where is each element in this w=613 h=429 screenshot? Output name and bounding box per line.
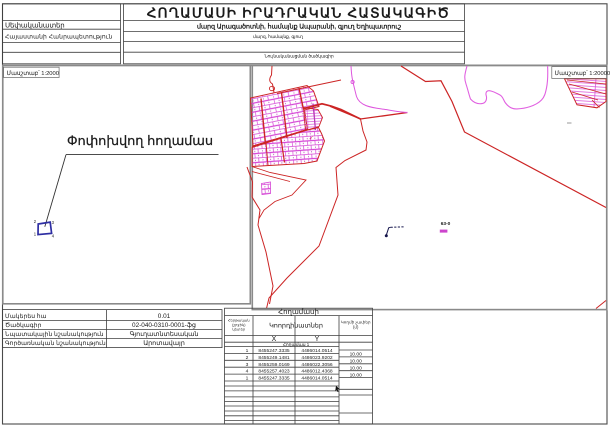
svg-text:Սեփականատեր: Սեփականատեր (5, 21, 65, 29)
svg-text:Մասշտաբ՝ 1:2000: Մասշտաբ՝ 1:2000 (7, 70, 59, 77)
svg-text:3: 3 (246, 362, 249, 368)
svg-text:Հերթական: Հերթական (228, 318, 251, 323)
svg-text:10.00: 10.00 (350, 352, 363, 358)
svg-text:Արոտավայր: Արոտավայր (143, 340, 185, 347)
svg-text:8455257.4023: 8455257.4023 (258, 369, 290, 375)
svg-text:4486012.4368: 4486012.4368 (301, 369, 333, 375)
svg-text:8455247.3335: 8455247.3335 (258, 376, 290, 382)
svg-text:մարզ Արագածոտնի, համայնք Ապարա: մարզ Արագածոտնի, համայնք Ապարանի, գյուղ … (197, 23, 401, 31)
svg-text:X: X (272, 336, 277, 343)
svg-text:Մակերես հա: Մակերես հա (5, 313, 47, 320)
svg-text:63-0: 63-0 (441, 221, 451, 227)
svg-text:4486022.3056: 4486022.3056 (301, 362, 333, 368)
svg-text:ՀՈՂԱՄԱՍԻ ԻՐԱԴՐԱԿԱՆ ՀԱՏԱԿԱԳԻԾ: ՀՈՂԱՄԱՍԻ ԻՐԱԴՐԱԿԱՆ ՀԱՏԱԿԱԳԻԾ (147, 6, 450, 21)
svg-text:8455247.3335: 8455247.3335 (258, 348, 290, 354)
svg-text:1: 1 (246, 348, 249, 354)
svg-text:(մ): (մ) (353, 325, 359, 330)
svg-text:2: 2 (246, 355, 249, 361)
svg-text:Մասշտաբ՝ 1:20000: Մասշտաբ՝ 1:20000 (555, 70, 611, 77)
svg-text:4: 4 (246, 369, 249, 375)
svg-text:մարզ, համայնք, գյուղ: մարզ, համայնք, գյուղ (253, 34, 303, 39)
svg-text:Հողամասի: Հողամասի (278, 308, 319, 316)
svg-text:10.00: 10.00 (350, 365, 363, 371)
svg-text:4486023.9202: 4486023.9202 (301, 355, 333, 361)
svg-text:8455249.1481: 8455249.1481 (258, 355, 290, 361)
svg-text:1: 1 (246, 376, 249, 382)
svg-text:10.00: 10.00 (350, 372, 363, 378)
svg-text:0.01: 0.01 (158, 313, 171, 320)
svg-text:Հողամաս 1: Հողամաս 1 (283, 342, 310, 347)
svg-text:02-040-0310-0001-ֆց: 02-040-0310-0001-ֆց (132, 322, 196, 329)
svg-text:Ծածկագիր: Ծածկագիր (5, 322, 42, 329)
svg-text:Գործառնական նշանակություն: Գործառնական նշանակություն (5, 340, 106, 347)
svg-text:Կոորդինատներ: Կոորդինատներ (269, 323, 323, 330)
svg-text:(շրջիկ): (շրջիկ) (232, 322, 245, 327)
svg-text:Հայաստանի Հանրապետություն: Հայաստանի Հանրապետություն (5, 34, 112, 41)
svg-text:10.00: 10.00 (350, 359, 363, 365)
svg-text:կետեր: կետեր (232, 327, 246, 332)
svg-text:Նույնականացման ծածկագիր: Նույնականացման ծածկագիր (264, 54, 334, 59)
svg-text:Y: Y (315, 336, 320, 343)
svg-text:4486014.0514: 4486014.0514 (301, 348, 333, 354)
svg-text:8455259.0169: 8455259.0169 (258, 362, 290, 368)
svg-text:4486014.0514: 4486014.0514 (301, 376, 333, 382)
svg-text:Նպատակային նշանակություն: Նպատակային նշանակություն (5, 331, 104, 338)
svg-text:Փոփոխվող հողամաս: Փոփոխվող հողամաս (67, 133, 213, 148)
svg-text:Գյուղատնտեսական: Գյուղատնտեսական (130, 331, 199, 338)
